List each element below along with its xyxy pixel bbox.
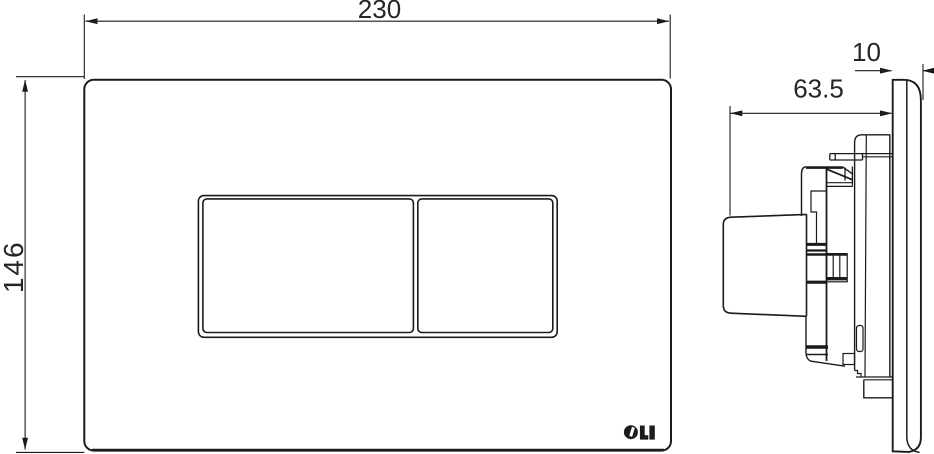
svg-text:230: 230 bbox=[358, 0, 401, 24]
svg-text:10: 10 bbox=[852, 37, 881, 67]
svg-text:146: 146 bbox=[0, 240, 29, 293]
svg-text:63.5: 63.5 bbox=[793, 73, 844, 103]
